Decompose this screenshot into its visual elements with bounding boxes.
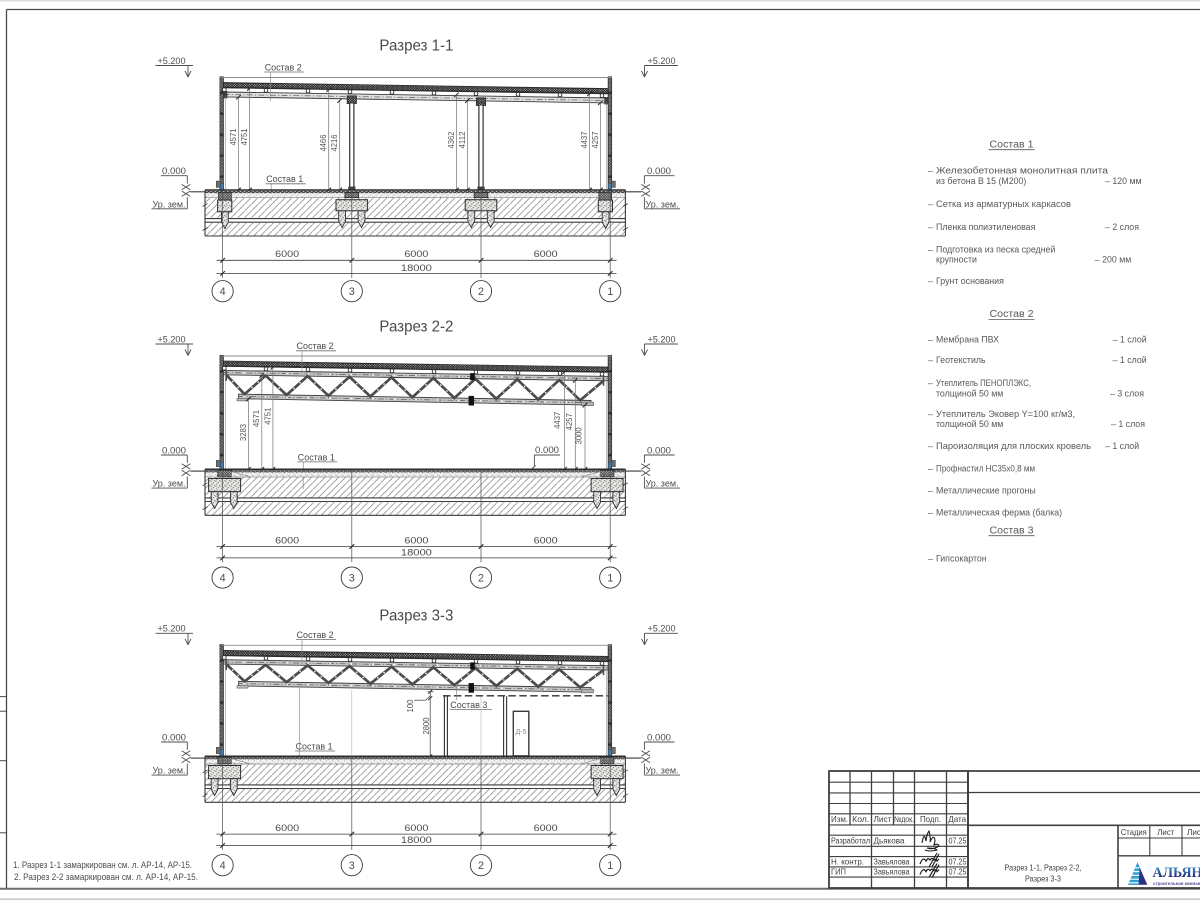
- svg-text:Лист: Лист: [874, 815, 892, 824]
- svg-text:3: 3: [349, 572, 355, 584]
- svg-text:Ур. зем.: Ур. зем.: [153, 765, 186, 776]
- svg-text:–: –: [928, 222, 933, 232]
- svg-text:–: –: [928, 554, 933, 564]
- svg-text:3: 3: [349, 860, 355, 872]
- svg-text:3: 3: [349, 286, 355, 298]
- svg-text:толщиной 50 мм: толщиной 50 мм: [936, 389, 1003, 399]
- svg-text:– 3 слоя: – 3 слоя: [1110, 389, 1144, 399]
- svg-text:– 120 мм: – 120 мм: [1105, 176, 1142, 186]
- svg-text:1: 1: [607, 286, 613, 298]
- svg-text:Состав 3: Состав 3: [990, 526, 1035, 537]
- svg-text:– 1 слоя: – 1 слоя: [1111, 419, 1145, 429]
- svg-text:Геотекстиль: Геотекстиль: [936, 355, 986, 365]
- svg-text:Разрез 1-1, Разрез 2-2,: Разрез 1-1, Разрез 2-2,: [1005, 863, 1082, 873]
- svg-text:–: –: [928, 441, 933, 451]
- svg-text:6000: 6000: [534, 822, 558, 833]
- svg-text:1: 1: [607, 572, 613, 584]
- svg-text:6000: 6000: [534, 248, 558, 259]
- svg-text:1: 1: [607, 860, 613, 872]
- svg-text:07.25: 07.25: [949, 857, 967, 866]
- svg-text:крупности: крупности: [936, 255, 977, 265]
- svg-text:Утеплитель ПЕНОПЛЭКС,: Утеплитель ПЕНОПЛЭКС,: [936, 378, 1031, 388]
- svg-text:6000: 6000: [404, 822, 428, 833]
- svg-text:строительная компания: строительная компания: [1153, 881, 1200, 886]
- svg-text:Состав 1: Состав 1: [990, 140, 1034, 151]
- svg-text:4112: 4112: [457, 131, 467, 148]
- svg-text:ГИП: ГИП: [831, 868, 846, 877]
- svg-text:Завьялова: Завьялова: [874, 868, 910, 877]
- svg-text:3000: 3000: [574, 427, 584, 444]
- svg-text:6000: 6000: [404, 534, 428, 545]
- svg-text:4437: 4437: [552, 412, 562, 429]
- svg-text:4751: 4751: [262, 407, 272, 424]
- svg-text:4216: 4216: [329, 134, 339, 151]
- svg-text:–: –: [928, 199, 933, 209]
- svg-text:– 200 мм: – 200 мм: [1095, 255, 1132, 265]
- svg-text:Подготовка из песка средней: Подготовка из песка средней: [936, 244, 1055, 254]
- svg-text:4571: 4571: [228, 128, 238, 145]
- svg-text:Д-5: Д-5: [516, 727, 527, 736]
- svg-text:6000: 6000: [275, 248, 299, 259]
- svg-text:–: –: [928, 244, 933, 254]
- svg-text:–: –: [928, 276, 933, 286]
- svg-text:4362: 4362: [446, 131, 456, 148]
- svg-text:Стадия: Стадия: [1121, 828, 1147, 837]
- svg-text:4: 4: [220, 572, 226, 584]
- svg-text:№док.: №док.: [894, 815, 914, 824]
- svg-text:Кол.: Кол.: [852, 815, 869, 824]
- svg-text:– 1 слой: – 1 слой: [1105, 441, 1139, 451]
- svg-text:Металлические прогоны: Металлические прогоны: [936, 486, 1036, 496]
- svg-text:–: –: [928, 166, 933, 176]
- svg-text:4257: 4257: [590, 131, 600, 148]
- svg-text:–: –: [928, 355, 933, 365]
- svg-text:18000: 18000: [401, 834, 432, 845]
- svg-text:толщиной 50 мм: толщиной 50 мм: [936, 419, 1003, 429]
- svg-text:Завьялова: Завьялова: [874, 857, 910, 866]
- svg-text:4257: 4257: [564, 413, 574, 430]
- svg-text:18000: 18000: [401, 546, 432, 557]
- svg-text:4: 4: [220, 860, 226, 872]
- svg-text:Ур. зем.: Ур. зем.: [646, 198, 679, 209]
- svg-text:– 1 слой: – 1 слой: [1113, 355, 1147, 365]
- svg-text:Состав 2: Состав 2: [990, 309, 1034, 320]
- svg-text:Пленка полиэтиленовая: Пленка полиэтиленовая: [936, 222, 1036, 232]
- svg-text:6000: 6000: [275, 534, 299, 545]
- svg-text:100: 100: [405, 699, 415, 712]
- svg-text:–: –: [928, 508, 933, 518]
- svg-text:6000: 6000: [404, 248, 428, 259]
- svg-text:Ур. зем.: Ур. зем.: [646, 765, 679, 776]
- svg-text:Н. контр.: Н. контр.: [831, 857, 864, 866]
- svg-text:Ур. зем.: Ур. зем.: [646, 478, 679, 489]
- svg-text:Сетка из арматурных каркасов: Сетка из арматурных каркасов: [936, 199, 1071, 209]
- svg-text:Изм.: Изм.: [831, 815, 848, 824]
- svg-text:Дата: Дата: [948, 815, 966, 824]
- svg-text:3283: 3283: [238, 424, 248, 441]
- svg-text:18000: 18000: [401, 262, 432, 273]
- svg-text:–: –: [928, 335, 933, 345]
- svg-text:Профнастил НС35х0,8 мм: Профнастил НС35х0,8 мм: [936, 464, 1035, 474]
- svg-text:Разработал: Разработал: [831, 837, 870, 846]
- svg-text:6000: 6000: [534, 534, 558, 545]
- svg-text:2800: 2800: [421, 717, 431, 734]
- svg-text:Дьякова: Дьякова: [874, 837, 906, 846]
- svg-text:07.25: 07.25: [949, 837, 967, 846]
- svg-text:Разрез 1-1: Разрез 1-1: [379, 38, 453, 55]
- svg-text:Ур. зем.: Ур. зем.: [153, 198, 186, 209]
- svg-text:Разрез 3-3: Разрез 3-3: [379, 608, 453, 625]
- svg-text:Грунт основания: Грунт основания: [936, 276, 1004, 286]
- svg-text:из бетона В 15 (М200): из бетона В 15 (М200): [936, 176, 1026, 186]
- svg-text:–: –: [928, 409, 933, 419]
- svg-text:07.25: 07.25: [949, 868, 967, 877]
- svg-text:4751: 4751: [239, 128, 249, 145]
- svg-text:Разрез 3-3: Разрез 3-3: [1025, 873, 1061, 883]
- svg-text:Подп.: Подп.: [920, 815, 941, 824]
- svg-text:АЛЬЯНС: АЛЬЯНС: [1153, 865, 1200, 881]
- svg-text:–: –: [928, 378, 933, 388]
- svg-text:– 1 слой: – 1 слой: [1113, 335, 1147, 345]
- svg-text:2: 2: [478, 860, 484, 872]
- svg-text:Железобетонная монолитная пли: Железобетонная монолитная плита: [936, 166, 1108, 176]
- svg-text:6000: 6000: [275, 822, 299, 833]
- svg-text:4437: 4437: [579, 131, 589, 148]
- svg-text:Лист: Лист: [1157, 828, 1174, 837]
- svg-text:–: –: [928, 486, 933, 496]
- svg-text:4571: 4571: [251, 410, 261, 427]
- svg-text:Лис: Лис: [1187, 828, 1200, 837]
- svg-text:Пароизоляция для плоских крове: Пароизоляция для плоских кровель: [936, 441, 1091, 451]
- svg-text:1. Разрез 1-1 замаркирован см.: 1. Разрез 1-1 замаркирован см. л. АР-14,…: [13, 860, 192, 870]
- svg-text:Разрез 2-2: Разрез 2-2: [379, 319, 453, 336]
- svg-text:–: –: [928, 464, 933, 474]
- svg-text:2: 2: [478, 286, 484, 298]
- svg-text:4: 4: [220, 286, 226, 298]
- svg-text:– 2 слоя: – 2 слоя: [1105, 222, 1139, 232]
- svg-text:4466: 4466: [318, 134, 328, 151]
- svg-text:Металлическая ферма (балка): Металлическая ферма (балка): [936, 508, 1062, 518]
- svg-text:2. Разрез 2-2 замаркирован см.: 2. Разрез 2-2 замаркирован см. л. АР-14,…: [14, 872, 198, 882]
- svg-text:2: 2: [478, 572, 484, 584]
- svg-text:Утеплитель Эковер Y=100 кг/м3,: Утеплитель Эковер Y=100 кг/м3,: [936, 409, 1075, 419]
- svg-text:0.000: 0.000: [535, 445, 559, 456]
- svg-text:Ур. зем.: Ур. зем.: [153, 478, 186, 489]
- svg-text:Гипсокартон: Гипсокартон: [936, 554, 987, 564]
- svg-text:Мембрана ПВХ: Мембрана ПВХ: [936, 335, 999, 345]
